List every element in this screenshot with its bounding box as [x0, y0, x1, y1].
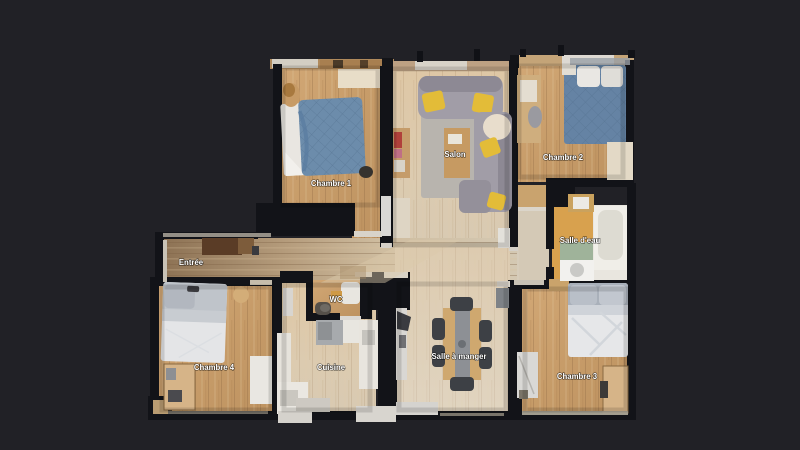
svg-text:Entrée: Entrée: [179, 258, 204, 267]
svg-text:Salle d'eau: Salle d'eau: [560, 236, 601, 245]
svg-text:WC: WC: [330, 295, 343, 304]
svg-text:Chambre 3: Chambre 3: [557, 372, 598, 381]
svg-text:Cuisine: Cuisine: [317, 363, 346, 372]
svg-text:Chambre 1: Chambre 1: [311, 179, 352, 188]
svg-text:Chambre 2: Chambre 2: [543, 153, 584, 162]
svg-text:Salon: Salon: [444, 150, 465, 159]
svg-text:Salle à manger: Salle à manger: [431, 352, 486, 361]
svg-text:Chambre 4: Chambre 4: [194, 363, 235, 372]
